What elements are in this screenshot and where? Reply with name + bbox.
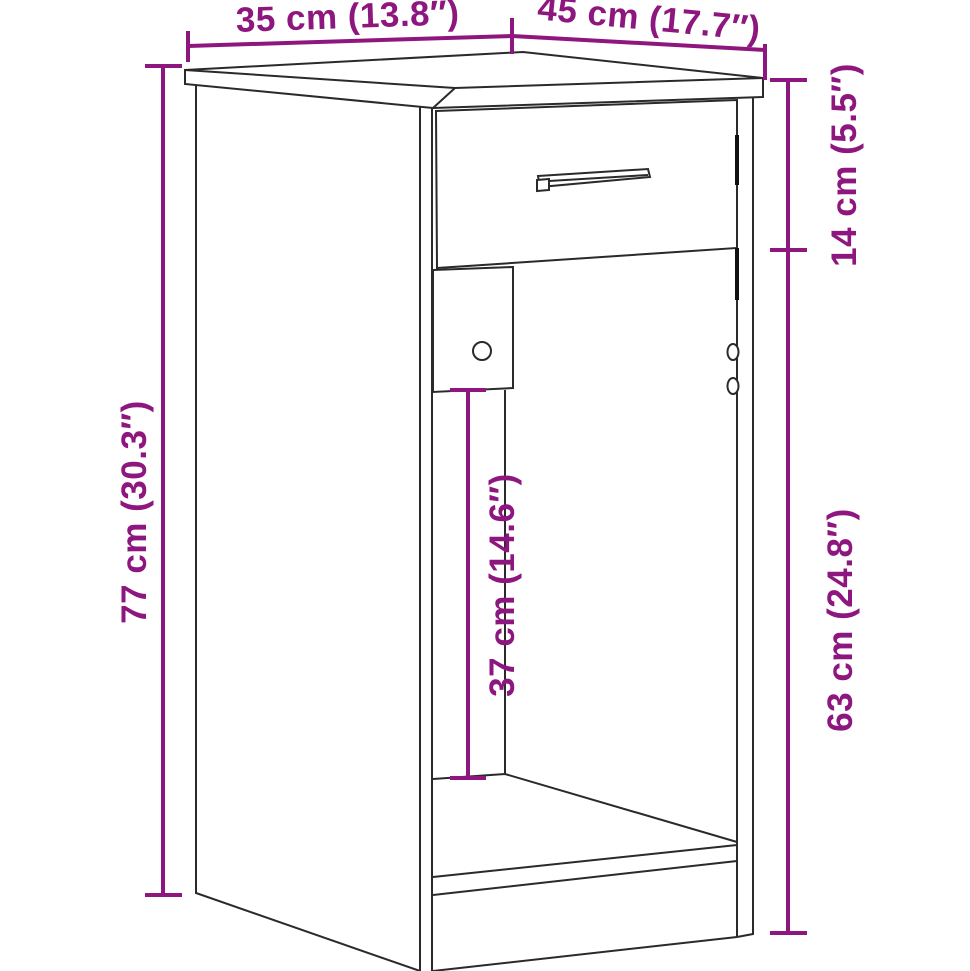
dimension-label-63cm: 63 cm (24.8″) <box>821 508 860 732</box>
dimension-label-77cm: 77 cm (30.3″) <box>115 400 154 624</box>
cabinet-line-art: 35 cm (13.8″) 45 cm (17.7″) 14 cm (5.5″)… <box>0 0 970 971</box>
dimension-diagram: 35 cm (13.8″) 45 cm (17.7″) 14 cm (5.5″)… <box>0 0 970 971</box>
right-panel-hole-top <box>728 344 739 360</box>
dimension-line-14cm-63cm <box>770 80 807 933</box>
support-panel <box>433 267 513 392</box>
dimension-label-35cm: 35 cm (13.8″) <box>235 0 460 40</box>
dimension-label-14cm: 14 cm (5.5″) <box>825 63 864 267</box>
dimension-label-37cm: 37 cm (14.6″) <box>483 473 522 697</box>
drawer-front <box>436 100 737 268</box>
cabinet-body <box>185 52 763 971</box>
dimension-label-45cm: 45 cm (17.7″) <box>536 0 762 49</box>
support-panel-hole <box>473 342 491 360</box>
right-panel-hole-bottom <box>728 378 739 394</box>
